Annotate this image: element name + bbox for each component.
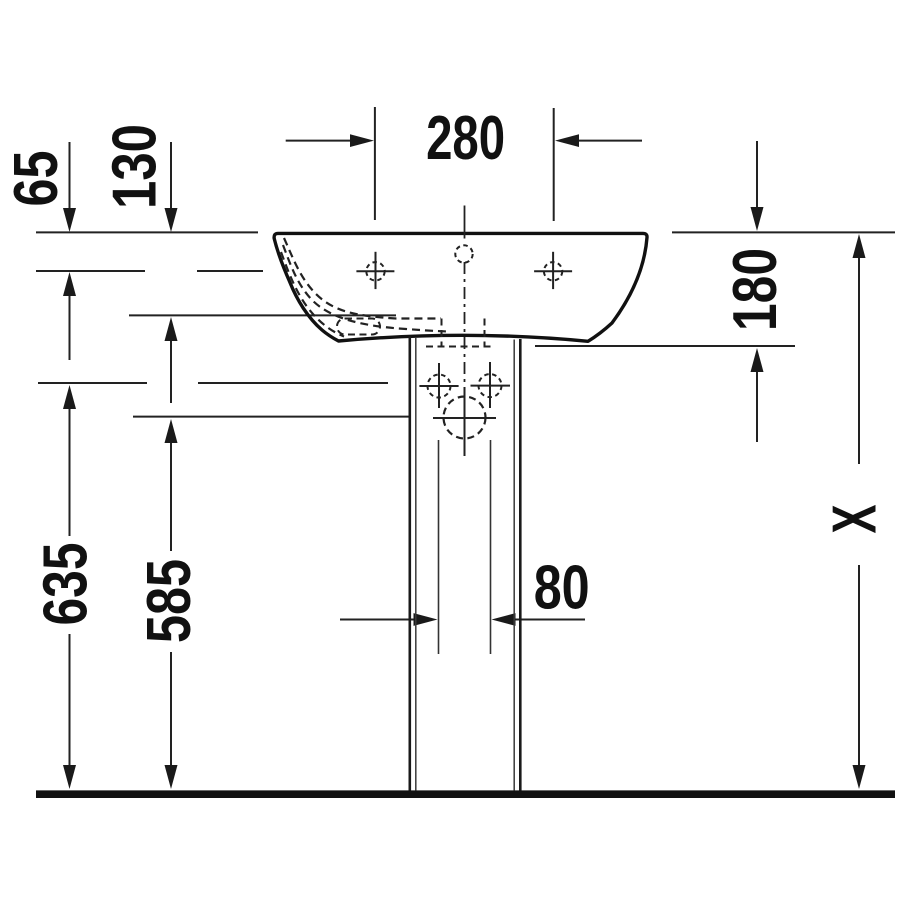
svg-text:280: 280 — [426, 104, 505, 173]
svg-text:130: 130 — [101, 124, 170, 209]
svg-text:585: 585 — [135, 559, 204, 643]
svg-text:180: 180 — [721, 248, 790, 331]
svg-text:80: 80 — [534, 554, 590, 623]
svg-text:635: 635 — [32, 543, 101, 626]
svg-text:65: 65 — [2, 151, 71, 207]
svg-text:X: X — [820, 505, 889, 534]
